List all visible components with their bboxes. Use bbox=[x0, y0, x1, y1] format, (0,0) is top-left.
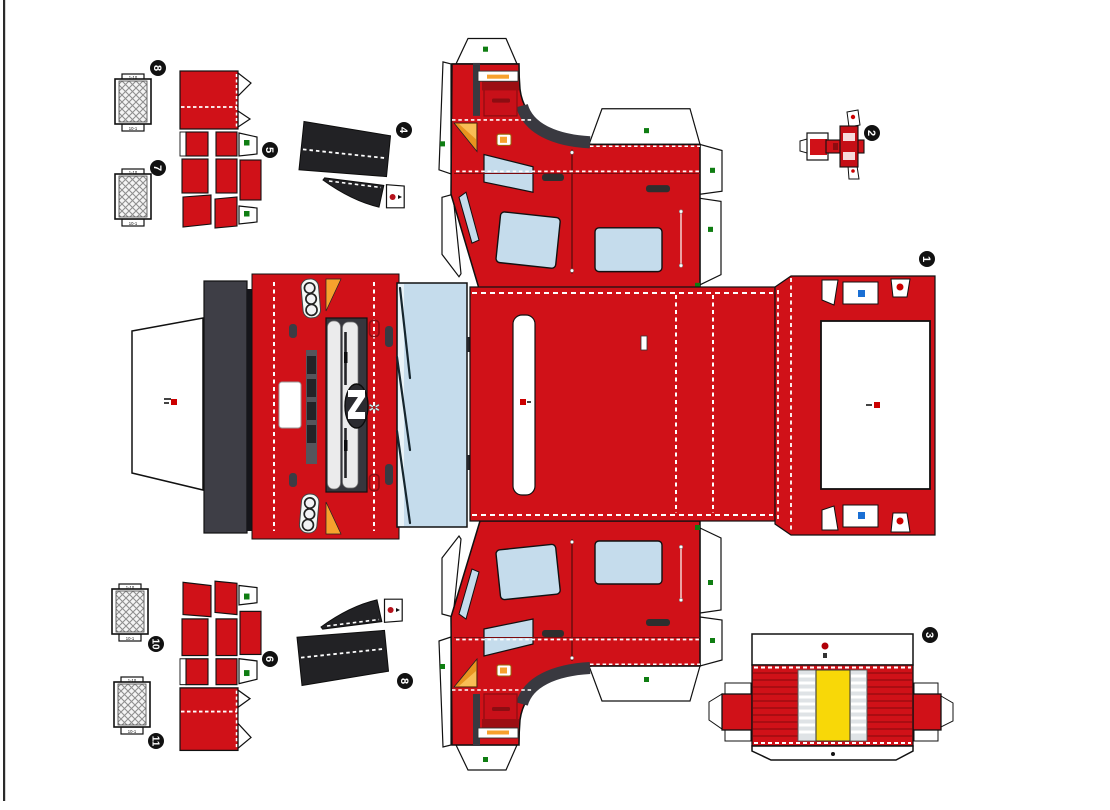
svg-text:3: 3 bbox=[923, 632, 935, 638]
svg-text:8: 8 bbox=[398, 678, 410, 684]
svg-text:5: 5 bbox=[263, 147, 275, 153]
svg-text:7: 7 bbox=[151, 165, 163, 171]
svg-text:4: 4 bbox=[397, 127, 409, 134]
svg-text:1: 1 bbox=[920, 256, 932, 262]
svg-text:8: 8 bbox=[151, 65, 163, 71]
svg-text:2: 2 bbox=[865, 130, 877, 136]
svg-text:11: 11 bbox=[150, 736, 161, 747]
svg-text:6: 6 bbox=[263, 656, 275, 662]
svg-text:10: 10 bbox=[150, 638, 161, 650]
